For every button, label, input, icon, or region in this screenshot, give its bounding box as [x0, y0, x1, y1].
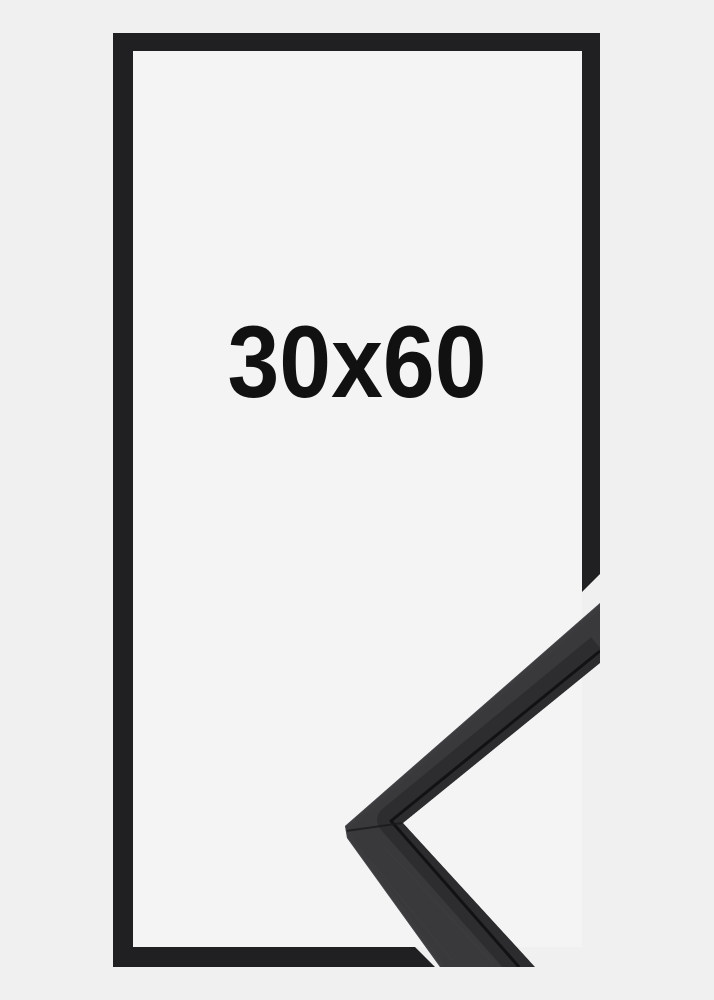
frame-interior: [133, 51, 582, 947]
frame-product-image: 30x60: [0, 0, 714, 1000]
frame-product-illustration: 30x60: [0, 0, 714, 1000]
size-label: 30x60: [228, 305, 487, 419]
